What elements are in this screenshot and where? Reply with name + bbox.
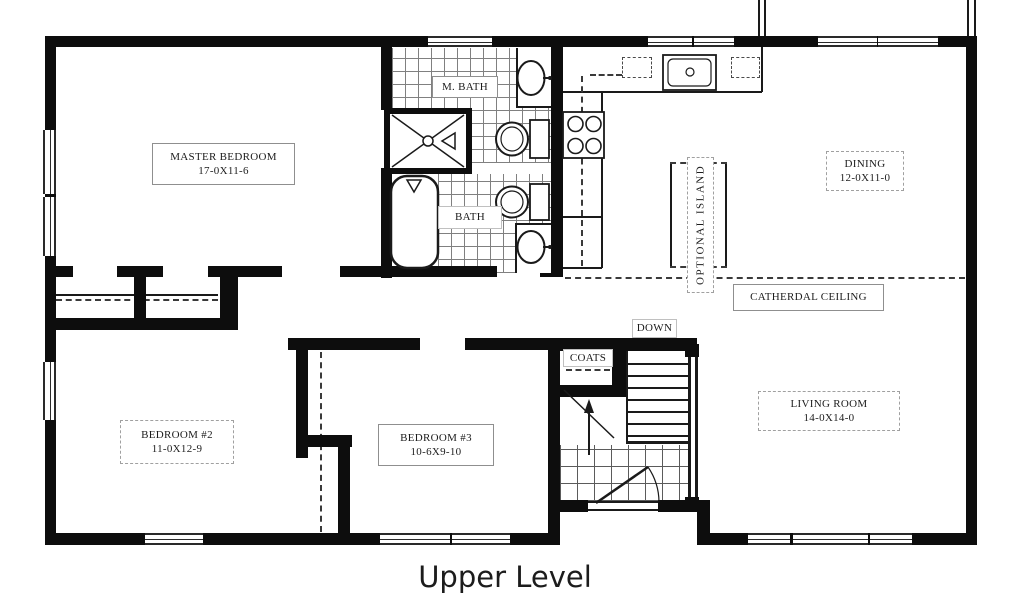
wall-bath-kitchen bbox=[551, 47, 563, 277]
entry-tile-floor bbox=[560, 445, 690, 501]
bedroom-2-label: BEDROOM #2 11-0X12-9 bbox=[120, 420, 234, 464]
wall-entry-side bbox=[697, 500, 710, 545]
room-dims: 11-0X12-9 bbox=[121, 442, 233, 456]
room-name: OPTIONAL ISLAND bbox=[693, 165, 707, 285]
railing-post bbox=[685, 344, 699, 357]
room-name: DOWN bbox=[633, 321, 676, 335]
stairs-icon bbox=[626, 441, 690, 444]
room-name: BEDROOM #2 bbox=[121, 428, 233, 442]
window bbox=[43, 362, 56, 420]
window bbox=[793, 533, 868, 545]
upper-projection-line bbox=[967, 0, 969, 36]
upper-projection-line bbox=[758, 0, 760, 36]
optional-island-label: OPTIONAL ISLAND bbox=[687, 157, 714, 293]
counter-edge bbox=[563, 91, 762, 93]
wall-hall bbox=[117, 266, 163, 277]
wall-entry-side bbox=[548, 500, 560, 545]
wall-closet-b3-left bbox=[296, 350, 308, 458]
room-name: BEDROOM #3 bbox=[379, 431, 493, 445]
cabinet-dashed-box bbox=[731, 57, 760, 78]
stairs-icon bbox=[626, 399, 690, 401]
wall-hall bbox=[340, 266, 497, 277]
ceiling-break-line bbox=[565, 277, 965, 279]
island-outline bbox=[670, 162, 672, 268]
cathedral-ceiling-label: CATHERDAL CEILING bbox=[733, 284, 884, 311]
window bbox=[145, 533, 203, 545]
window bbox=[748, 533, 790, 545]
wall-closet-b3-top bbox=[288, 338, 364, 350]
bathtub-icon bbox=[391, 176, 438, 268]
door-threshold bbox=[588, 509, 658, 511]
counter-edge bbox=[761, 47, 763, 92]
vanity-counter bbox=[515, 223, 551, 273]
page-title: Upper Level bbox=[345, 560, 665, 594]
wall-bedroom3-top bbox=[465, 338, 548, 350]
bedroom-3-label: BEDROOM #3 10-6X9-10 bbox=[378, 424, 494, 466]
room-name: BATH bbox=[439, 210, 501, 224]
vanity-counter bbox=[516, 48, 551, 108]
window bbox=[43, 197, 56, 256]
stairs-icon bbox=[626, 375, 690, 377]
railing-icon bbox=[688, 346, 691, 508]
room-name: MASTER BEDROOM bbox=[153, 150, 294, 164]
wall-left bbox=[45, 36, 56, 545]
counter-edge bbox=[601, 92, 603, 268]
room-name: LIVING ROOM bbox=[759, 397, 899, 411]
stove-icon bbox=[563, 112, 604, 158]
window bbox=[428, 36, 492, 47]
stairs-icon bbox=[626, 363, 690, 365]
window bbox=[694, 36, 734, 47]
wall-hall bbox=[208, 266, 282, 277]
upper-cabinet-dashes bbox=[590, 74, 622, 76]
room-name: CATHERDAL CEILING bbox=[734, 290, 883, 304]
stairs-icon bbox=[626, 411, 690, 413]
window bbox=[818, 36, 877, 47]
wall-closet-b2-right bbox=[338, 447, 350, 533]
bath-label: BATH bbox=[438, 206, 502, 229]
room-dims: 10-6X9-10 bbox=[379, 445, 493, 459]
door-threshold bbox=[588, 501, 658, 503]
window bbox=[870, 533, 912, 545]
railing-icon bbox=[695, 346, 698, 508]
upper-projection-line bbox=[764, 0, 766, 36]
master-bath-label: M. BATH bbox=[432, 76, 498, 98]
wall-bedroom3-top bbox=[364, 338, 420, 350]
island-outline bbox=[725, 162, 727, 268]
kitchen-sink-icon bbox=[663, 55, 716, 90]
window bbox=[43, 130, 56, 194]
wall-closet-stem bbox=[134, 277, 146, 319]
stairs-icon bbox=[626, 435, 690, 437]
window bbox=[648, 36, 692, 47]
wall-coats-bottom bbox=[560, 385, 626, 397]
wall-master-bath-divider bbox=[381, 47, 392, 110]
wall-hall bbox=[45, 266, 73, 277]
living-room-label: LIVING ROOM 14-0X14-0 bbox=[758, 391, 900, 431]
down-label: DOWN bbox=[632, 319, 677, 338]
room-name: COATS bbox=[564, 351, 612, 365]
upper-cabinet-dashes bbox=[581, 76, 583, 216]
coats-label: COATS bbox=[563, 349, 613, 367]
room-dims: 14-0X14-0 bbox=[759, 411, 899, 425]
window bbox=[878, 36, 938, 47]
master-bedroom-label: MASTER BEDROOM 17-0X11-6 bbox=[152, 143, 295, 185]
window bbox=[380, 533, 450, 545]
shower-icon bbox=[384, 108, 472, 174]
upper-cabinet-dashes bbox=[581, 220, 583, 266]
window bbox=[452, 533, 510, 545]
upper-projection-line bbox=[974, 0, 976, 36]
room-dims: 12-0X11-0 bbox=[827, 171, 903, 185]
floor-plan: MASTER BEDROOM 17-0X11-6 DINING 12-0X11-… bbox=[0, 0, 1024, 607]
room-name: DINING bbox=[827, 157, 903, 171]
closet-rod-icon bbox=[566, 369, 610, 371]
room-name: M. BATH bbox=[433, 80, 497, 94]
dining-label: DINING 12-0X11-0 bbox=[826, 151, 904, 191]
cabinet-dashed-box bbox=[622, 57, 652, 78]
stairs-icon bbox=[626, 423, 690, 425]
stairs-icon bbox=[626, 387, 690, 389]
wall-closet-divider bbox=[308, 435, 352, 447]
wall-master-bath-divider bbox=[381, 168, 392, 278]
wall-right bbox=[966, 36, 977, 545]
wall-bedroom2-top bbox=[45, 318, 230, 330]
room-dims: 17-0X11-6 bbox=[153, 164, 294, 178]
